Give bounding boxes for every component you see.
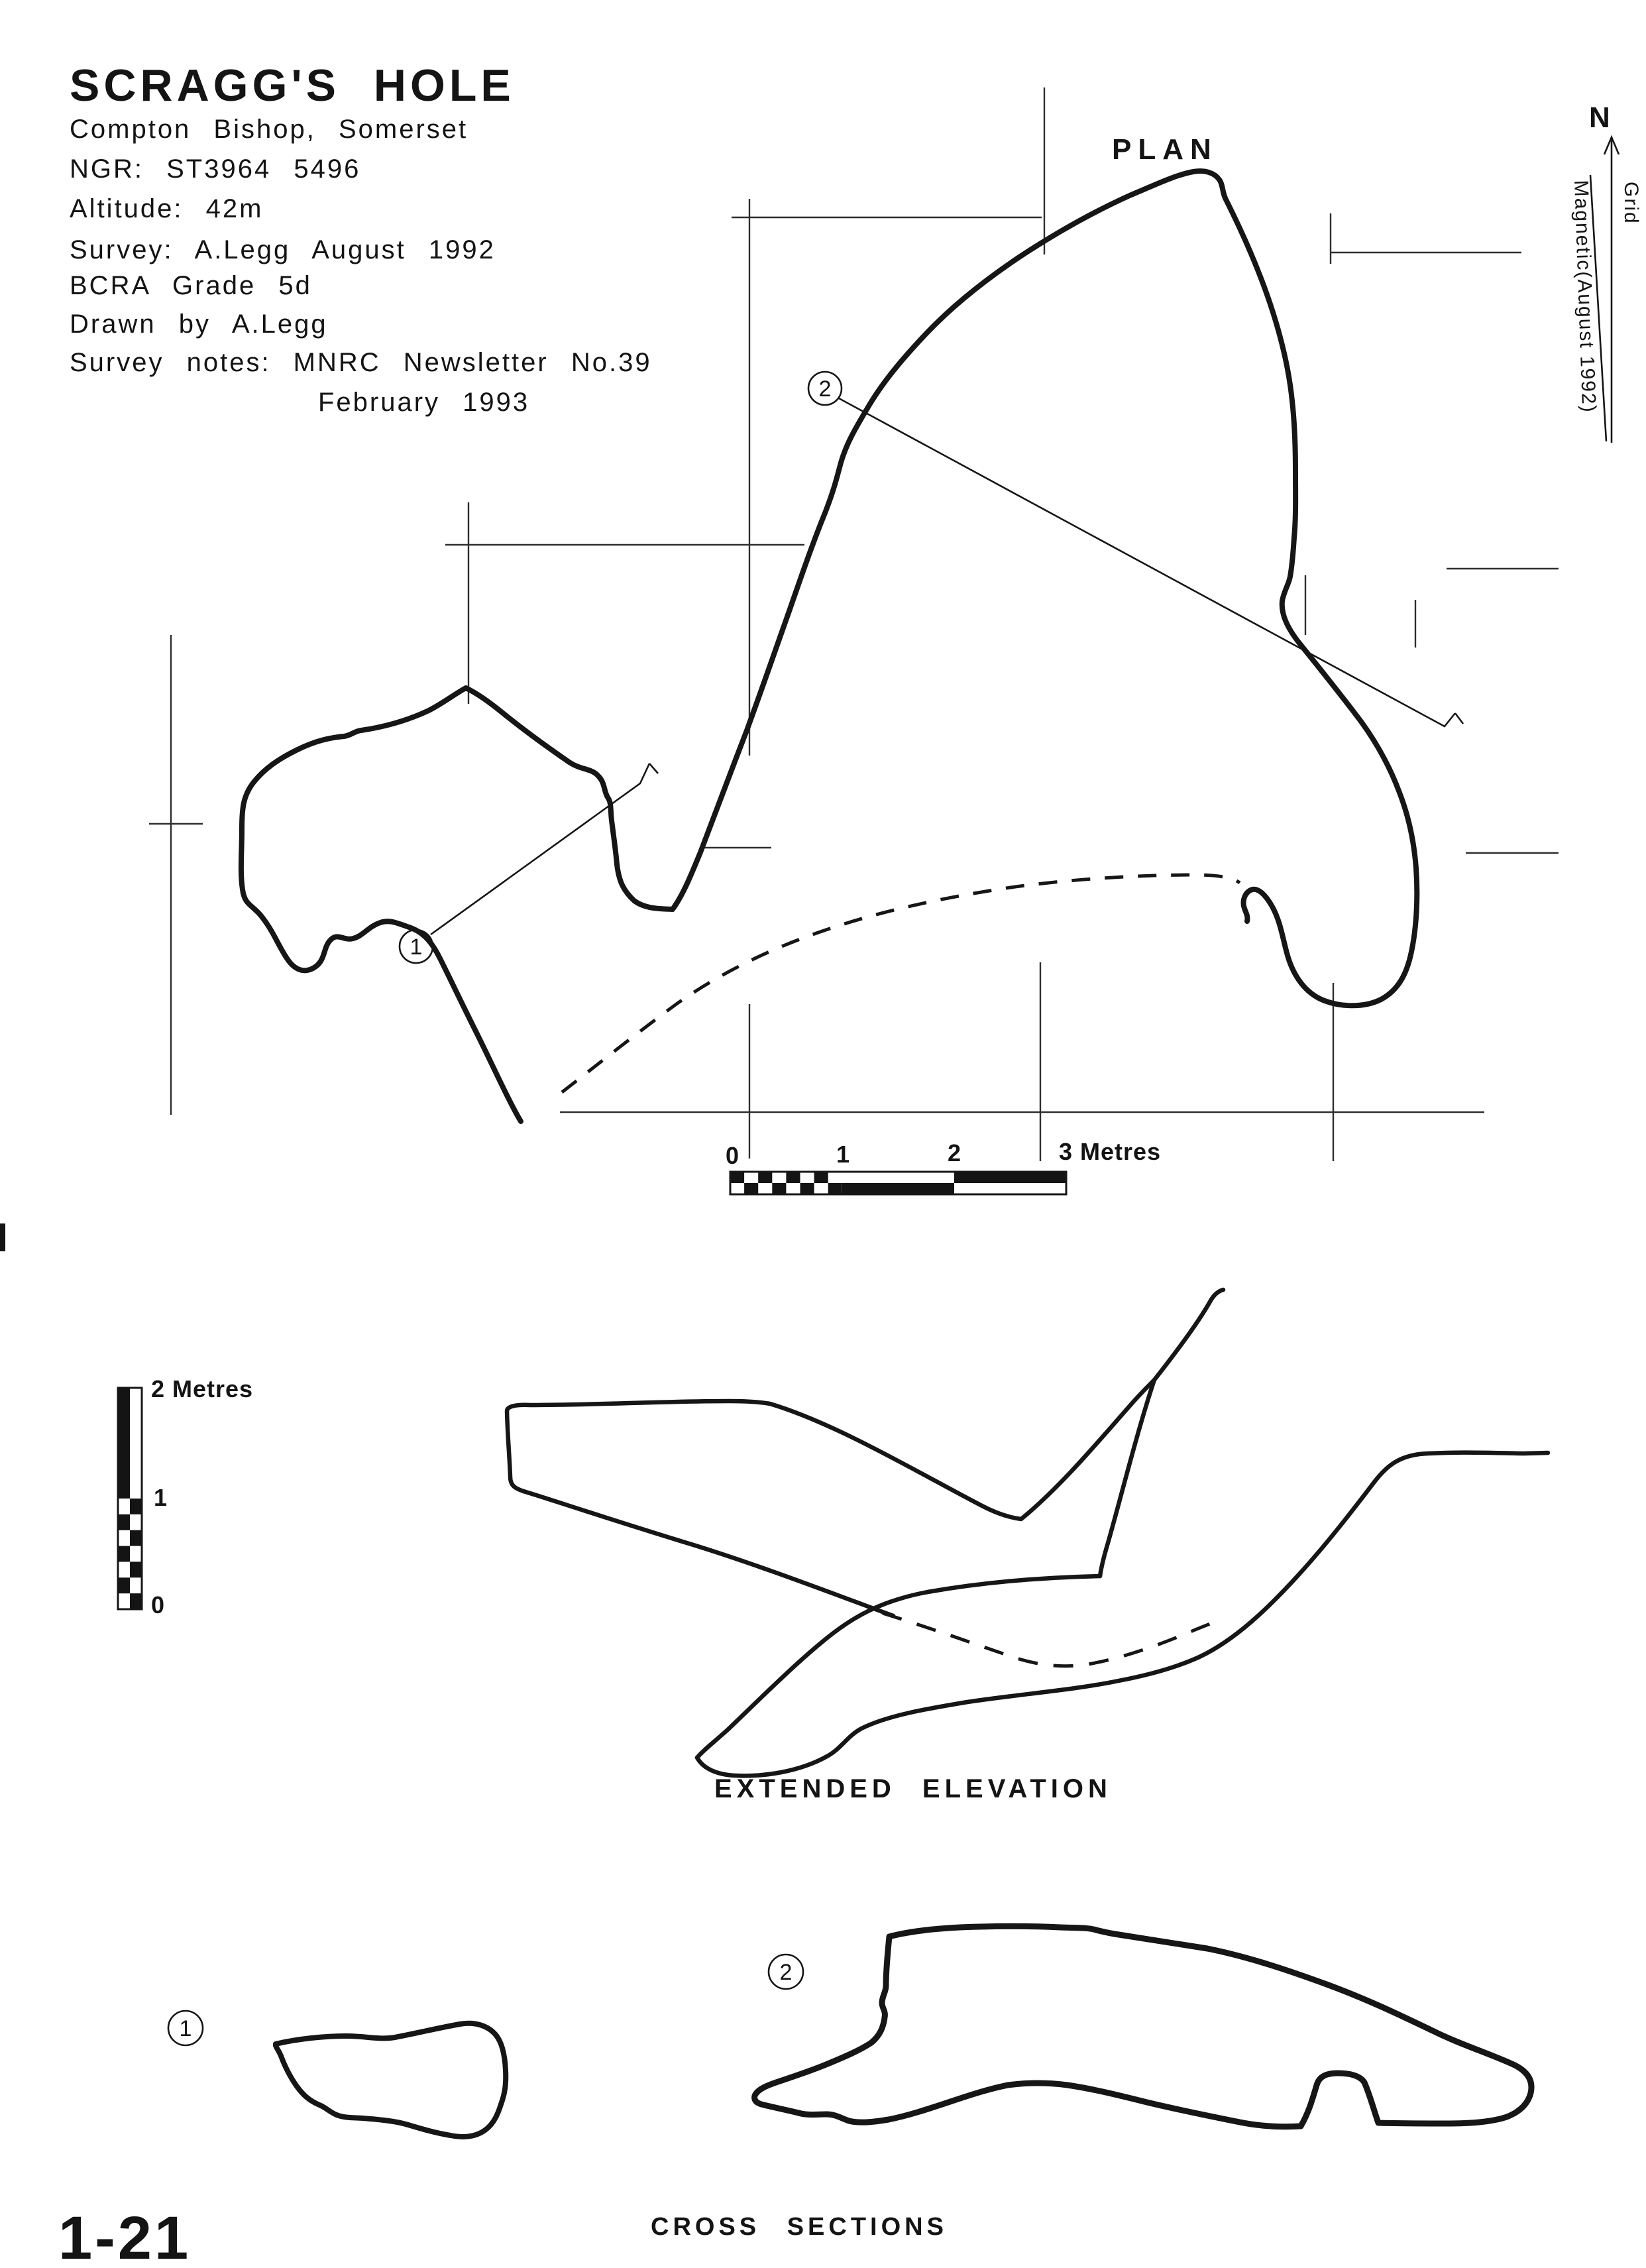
scale-cell [118, 1388, 130, 1499]
scale-cell [730, 1172, 744, 1183]
title-altitude: Altitude: 42m [70, 194, 263, 223]
section-line-2-arrow-icon [1455, 713, 1463, 724]
cross-section-1-label: 1 [180, 2016, 192, 2041]
title-location: Compton Bishop, Somerset [70, 115, 468, 144]
elevation-lower-roof [697, 1576, 1100, 1758]
cross-section-2-label: 2 [780, 1960, 793, 1985]
survey-drawing: SCRAGG'S HOLE Compton Bishop, Somerset N… [0, 0, 1646, 2268]
title-notes-line2: February 1993 [318, 388, 529, 417]
grid-north-label: Grid [1620, 182, 1642, 225]
cross-sections-label: CROSS SECTIONS [651, 2213, 948, 2241]
plan-wall-outline [241, 171, 1417, 1121]
scale-cell [800, 1183, 814, 1194]
elevation-scale-bar: 2 Metres 1 0 [118, 1375, 253, 1618]
scale-cell [814, 1172, 828, 1183]
scale-cell [130, 1530, 142, 1546]
plan-scale-bar: 0 1 2 3 Metres [726, 1138, 1161, 1194]
scale-cell [744, 1183, 758, 1194]
survey-sheet: SCRAGG'S HOLE Compton Bishop, Somerset N… [0, 0, 1646, 2268]
scale-v-middle: 1 [154, 1484, 168, 1511]
section-line-1-arrow-icon [649, 764, 658, 773]
north-indicator: N Grid Magnetic(August 1992) [1570, 101, 1642, 443]
scale-cell [954, 1172, 1066, 1183]
scale-v-bottom: 0 [151, 1591, 165, 1618]
scale-cell [118, 1514, 130, 1530]
scale-cell [828, 1183, 842, 1194]
scale-v-top: 2 Metres [151, 1375, 253, 1402]
scale-h-0: 0 [726, 1142, 740, 1169]
plan-view: PLAN 1 2 [241, 133, 1463, 1121]
scale-cell [118, 1546, 130, 1562]
title-block: SCRAGG'S HOLE Compton Bishop, Somerset N… [70, 60, 652, 417]
scale-cell [118, 1577, 130, 1593]
scale-cell [786, 1172, 800, 1183]
page-title: SCRAGG'S HOLE [70, 60, 515, 111]
elevation-upper-outline [507, 1290, 1223, 1519]
title-survey: Survey: A.Legg August 1992 [70, 235, 496, 264]
cross-sections: 1 2 CROSS SECTIONS [168, 1926, 1531, 2241]
plan-label: PLAN [1112, 133, 1218, 166]
north-letter: N [1589, 101, 1611, 134]
page-edge-mark [0, 1223, 5, 1251]
elevation-upper-floor [523, 1491, 893, 1616]
elevation-label: EXTENDED ELEVATION [714, 1774, 1112, 1803]
scale-h-2: 2 [948, 1139, 961, 1166]
plan-station-1-label: 1 [410, 935, 423, 960]
scale-cell [842, 1183, 954, 1194]
title-drawn-by: Drawn by A.Legg [70, 310, 328, 339]
elevation-dashed-line [883, 1613, 1217, 1666]
title-grade: BCRA Grade 5d [70, 271, 312, 300]
plan-station-2-label: 2 [819, 376, 832, 402]
scale-cell [130, 1593, 142, 1609]
cross-section-2-outline [755, 1926, 1531, 2126]
scale-cell [758, 1172, 772, 1183]
scale-cell [130, 1499, 142, 1514]
elevation-lower-floor [697, 1453, 1548, 1776]
title-notes-line1: Survey notes: MNRC Newsletter No.39 [70, 348, 652, 377]
cross-section-1-outline [276, 2023, 506, 2137]
page-number: 1-21 [58, 2204, 191, 2268]
scale-h-1: 1 [836, 1141, 850, 1168]
magnetic-north-label: Magnetic(August 1992) [1570, 180, 1600, 414]
extended-elevation: EXTENDED ELEVATION [507, 1290, 1548, 1803]
title-ngr: NGR: ST3964 5496 [70, 154, 360, 184]
section-line-2 [839, 398, 1455, 726]
scale-cell [772, 1183, 786, 1194]
scale-h-3-metres: 3 Metres [1059, 1138, 1161, 1165]
scale-cell [130, 1561, 142, 1577]
